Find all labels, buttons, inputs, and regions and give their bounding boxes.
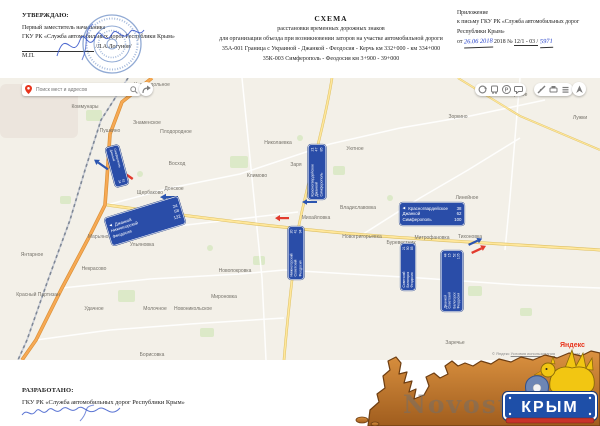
place-label: Янтарное bbox=[21, 252, 44, 258]
round-stamp bbox=[80, 12, 144, 76]
place-label: Михайловка bbox=[302, 214, 331, 221]
scheme-road1: 35А-001 Граница с Украиной - Джанкой - Ф… bbox=[203, 45, 459, 55]
map-layers-pill[interactable]: P bbox=[475, 83, 526, 96]
annex-block: Приложение к письму ГКУ РК «Служба автом… bbox=[457, 9, 595, 48]
place-label: Мироновка bbox=[211, 294, 237, 300]
developed-org: ГКУ РК «Служба автомобильных дорог Респу… bbox=[22, 399, 185, 406]
map-canvas: Краснодольное Коммунары Знаменское Плодо… bbox=[0, 78, 600, 360]
scheme-subtitle2: для организации объезда при возникновени… bbox=[203, 35, 459, 45]
sign-dest: Симферополь bbox=[319, 173, 323, 197]
place-label: Щербаково bbox=[137, 190, 163, 196]
place-label: Митрофановка bbox=[415, 235, 450, 241]
scheme-road2: 35К-003 Симферополь - Феодосия км 3+900 … bbox=[203, 55, 459, 65]
route-icon bbox=[142, 85, 151, 94]
developed-label: РАЗРАБОТАНО: bbox=[22, 387, 74, 394]
place-label: Линейное bbox=[456, 194, 479, 201]
map-pin-icon bbox=[25, 85, 32, 94]
annex-year: 2018 № bbox=[494, 39, 513, 45]
annex-line3: Республики Крым» bbox=[457, 28, 595, 37]
map-tools-pill[interactable] bbox=[534, 83, 573, 96]
place-label: Борисовка bbox=[140, 352, 165, 358]
map-search-bar[interactable] bbox=[22, 83, 141, 96]
scheme-title-block: СХЕМА расстановки временных дорожных зна… bbox=[203, 13, 459, 65]
red-arrow-d bbox=[275, 215, 289, 221]
pearl bbox=[533, 384, 541, 392]
place-label: Знаменское bbox=[133, 120, 161, 126]
bookmarks-icon[interactable] bbox=[514, 85, 523, 94]
place-label: Пушкино bbox=[100, 128, 121, 134]
ruler-icon[interactable] bbox=[537, 85, 546, 94]
layers-icon[interactable] bbox=[561, 85, 570, 94]
route-button[interactable] bbox=[139, 82, 153, 96]
place-label: Ульяновка bbox=[130, 242, 155, 248]
annex-number: 12/1 - 03 / bbox=[514, 39, 538, 46]
scheme-title: СХЕМА bbox=[203, 13, 459, 25]
sign-km: 85 bbox=[319, 148, 323, 152]
sign-km: 132 bbox=[173, 213, 181, 220]
place-label: Лужки bbox=[573, 115, 587, 121]
developer-signature bbox=[20, 403, 130, 423]
road-sign-e: ◀Красногвардейское38 Джанкой62 Симферопо… bbox=[400, 203, 464, 225]
krym-banner: КРЫМ bbox=[503, 392, 598, 424]
annex-line1: Приложение bbox=[457, 9, 595, 18]
place-label: Донское bbox=[164, 186, 184, 192]
place-label: Уютное bbox=[346, 146, 363, 152]
place-label: Плодородное bbox=[160, 129, 192, 135]
handwritten-date: 26.06 2018 bbox=[464, 36, 493, 48]
road-sign-g: Джанкой44 Советский15 Белогорск52 Феодос… bbox=[442, 251, 463, 311]
sign-dest: Феодосия bbox=[410, 272, 414, 287]
search-input[interactable] bbox=[34, 86, 128, 94]
parking-letter: P bbox=[505, 88, 509, 94]
traffic-icon[interactable] bbox=[478, 85, 487, 94]
place-label: Молочное bbox=[143, 306, 167, 312]
place-label: Некрасово bbox=[82, 266, 107, 272]
sign-dest: Феодосия bbox=[298, 260, 302, 276]
sign-dest: Симферополь bbox=[403, 217, 432, 223]
place-label: Тихоновка bbox=[458, 234, 482, 240]
place-label: Зоркино bbox=[448, 114, 467, 120]
red-arrow-g bbox=[470, 243, 487, 255]
scheme-subtitle1: расстановки временных дорожных знаков bbox=[203, 25, 459, 35]
place-label: Восход bbox=[169, 161, 186, 167]
annex-number-line: от 26.06 2018 2018 № 12/1 - 03 / 5971 bbox=[457, 37, 595, 48]
sign-km: 100 bbox=[454, 217, 461, 223]
left-arrow-icon: ◀ bbox=[403, 206, 406, 210]
place-label: Удачное bbox=[84, 306, 104, 312]
place-label: Коммунары bbox=[71, 104, 98, 110]
place-label: Красный Партизан bbox=[16, 291, 60, 298]
sign-km: 105 bbox=[456, 254, 460, 260]
navigator-icon bbox=[575, 85, 584, 94]
parking-icon[interactable]: P bbox=[502, 85, 511, 94]
locate-button[interactable] bbox=[572, 82, 586, 96]
sign-dest: Феодосия bbox=[456, 293, 460, 309]
krym-crest: КРЫМ bbox=[490, 348, 600, 426]
place-label: Новогригорьевка bbox=[342, 234, 382, 240]
place-label: Николаевка bbox=[264, 140, 292, 146]
place-labels: Краснодольное Коммунары Знаменское Плодо… bbox=[16, 82, 587, 358]
place-label: Новоникольское bbox=[174, 306, 212, 312]
sign-km: 85 bbox=[410, 247, 414, 251]
transport-icon[interactable] bbox=[490, 85, 499, 94]
place-label: Новопокровка bbox=[219, 268, 252, 274]
krym-banner-text: КРЫМ bbox=[521, 399, 578, 416]
place-label: Климово bbox=[247, 173, 267, 179]
yandex-map[interactable]: Краснодольное Коммунары Знаменское Плодо… bbox=[0, 78, 600, 360]
print-icon[interactable] bbox=[549, 85, 558, 94]
road-sign-d: Нижнегорский20 Советский41 Феодосия94 bbox=[289, 227, 304, 279]
place-label: Владиславовка bbox=[340, 205, 376, 211]
sign-km: 24 bbox=[117, 180, 121, 184]
annex-from: от bbox=[457, 39, 462, 45]
sign-km: 94 bbox=[298, 230, 302, 234]
handwritten-number: 5971 bbox=[539, 37, 552, 49]
place-label: Заря bbox=[290, 162, 302, 168]
annex-line2: к письму ГКУ РК «Служба автомобильных до… bbox=[457, 18, 595, 27]
road-sign-f: Советский21 Белогорск50 Феодосия85 bbox=[401, 244, 415, 290]
road-sign-c: Красногвардейское21 Джанкой47 Симферопол… bbox=[309, 145, 326, 199]
search-icon[interactable] bbox=[130, 86, 138, 94]
